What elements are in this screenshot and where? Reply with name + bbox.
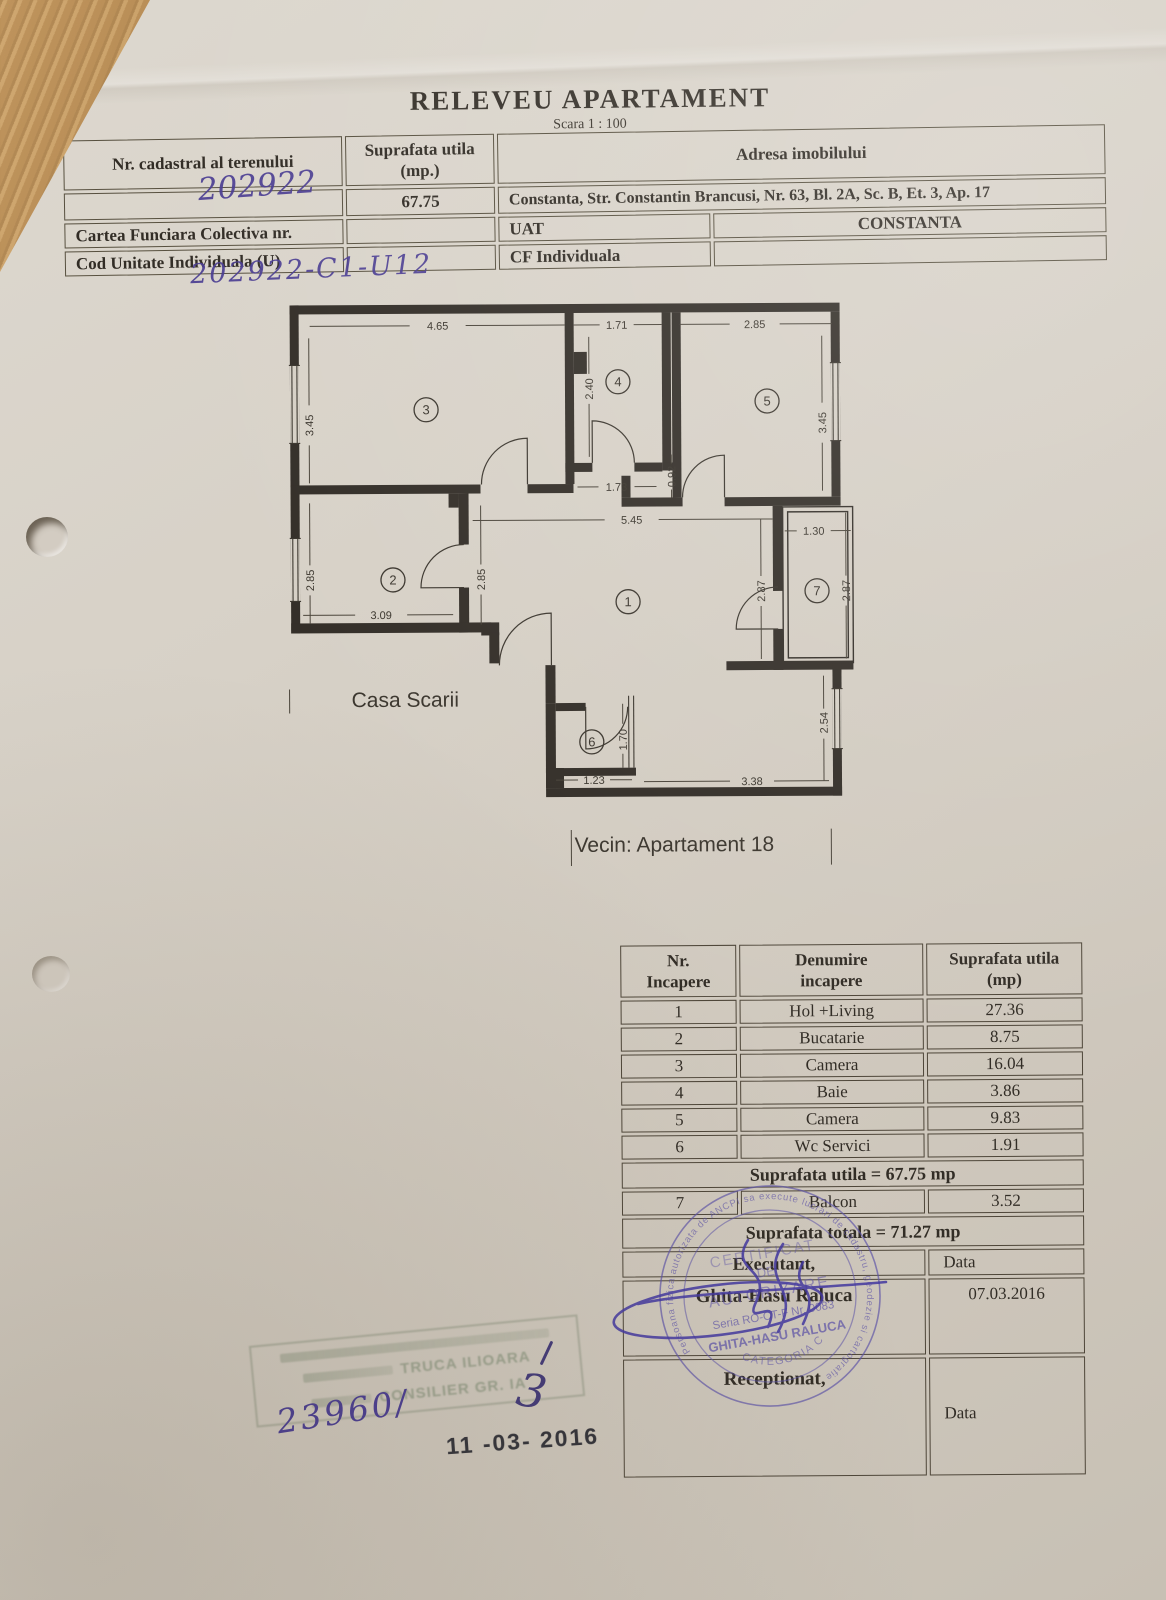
row-area: 3.52 [928, 1188, 1084, 1213]
row-area: 27.36 [927, 997, 1083, 1022]
row-name: Camera [740, 1053, 924, 1078]
header-col3-label: Adresa imobilului [497, 124, 1106, 184]
table-row: 5 Camera 9.83 [621, 1105, 1083, 1132]
punch-hole [26, 517, 68, 557]
dim-side-height: 2.54 [819, 712, 831, 733]
row-name: Wc Servici [740, 1133, 924, 1158]
row-area: 1.91 [927, 1132, 1083, 1157]
dim-room4-width: 1.71 [606, 320, 627, 332]
row-nr: 3 [621, 1054, 737, 1079]
table-row: 6 Wc Servici 1.91 [621, 1132, 1083, 1159]
date-value: 07.03.2016 [928, 1277, 1085, 1354]
col-header-area: Suprafata utila (mp) [926, 942, 1082, 995]
room-7-number: 7 [813, 583, 820, 598]
floor-plan: 4.65 1.71 2.85 3.45 2.40 3.45 1.73 0.92 … [281, 290, 862, 878]
empty-cell [346, 217, 495, 244]
row-area: 9.83 [927, 1105, 1083, 1130]
cf-individuala-label: CF Individuala [499, 241, 711, 269]
date-label-2: Data [929, 1356, 1086, 1475]
row-area: 3.86 [927, 1078, 1083, 1103]
dim-room3-height: 3.45 [304, 415, 316, 436]
col-header-name: Denumire incapere [739, 944, 923, 997]
dim-bottom-width: 3.38 [741, 776, 762, 788]
room-4-number: 4 [614, 374, 621, 389]
dim-room3-width: 4.65 [427, 321, 448, 333]
row-nr: 4 [621, 1081, 737, 1106]
col-header-nr: Nr. Incapere [620, 945, 736, 998]
row-nr: 6 [621, 1135, 737, 1160]
dim-room4-height: 2.40 [584, 378, 596, 399]
date-stamp: 11 -03- 2016 [445, 1423, 600, 1461]
executant-signature [598, 1232, 928, 1372]
table-row: 4 Baie 3.86 [621, 1078, 1083, 1105]
row-nr: 5 [621, 1108, 737, 1133]
document-title: RELEVEU APARTAMENT [290, 81, 890, 118]
row-name: Hol +Living [740, 999, 924, 1024]
dim-wc-height: 1.70 [618, 729, 630, 750]
cartea-funciara-label: Cartea Funciara Colectiva nr. [64, 219, 343, 248]
stairwell-label: Casa Scarii [352, 689, 459, 713]
dim-balcony-height-left: 2.87 [756, 580, 768, 601]
row-nr: 2 [621, 1027, 737, 1052]
row-area: 16.04 [927, 1051, 1083, 1076]
table-row: 1 Hol +Living 27.36 [621, 997, 1083, 1024]
table-row: 3 Camera 16.04 [621, 1051, 1083, 1078]
row-name: Camera [740, 1106, 924, 1131]
room-2-number: 2 [389, 572, 396, 587]
dim-kitchen-door-height: 2.85 [476, 569, 488, 590]
dim-room5-height: 3.45 [817, 412, 829, 433]
dim-passage-width: 1.73 [606, 482, 627, 494]
room-3-number: 3 [422, 402, 429, 417]
row-nr: 1 [621, 1000, 737, 1025]
uat-label: UAT [498, 213, 710, 241]
stamp-officer-name: TRUCA ILIOARA [399, 1348, 531, 1377]
dim-kitchen-width: 3.09 [370, 610, 391, 622]
room-6-number: 6 [588, 734, 595, 749]
scanned-document-paper: RELEVEU APARTAMENT Scara 1 : 100 Nr. cad… [0, 0, 1166, 1600]
dim-balcony-width: 1.30 [803, 526, 824, 538]
dim-room5-width: 2.85 [744, 319, 765, 331]
row-name: Baie [740, 1080, 924, 1105]
walls-layer [290, 303, 855, 799]
illegible-stamp-prefix [302, 1365, 392, 1383]
date-label: Data [928, 1248, 1084, 1275]
uat-value: CONSTANTA [713, 207, 1106, 238]
room-5-number: 5 [763, 393, 770, 408]
dim-balcony-height-right: 2.87 [841, 580, 853, 601]
empty-cell [714, 235, 1107, 266]
doors-layer [420, 420, 779, 750]
punch-hole [32, 956, 70, 992]
dim-wc-width: 1.23 [583, 775, 604, 787]
room-1-number: 1 [624, 594, 631, 609]
table-row: 2 Bucatarie 8.75 [621, 1024, 1083, 1051]
dim-passage-height: 0.92 [666, 466, 678, 487]
neighbor-label: Vecin: Apartament 18 [574, 833, 774, 857]
row-area: 8.75 [927, 1024, 1083, 1049]
dim-kitchen-height: 2.85 [305, 570, 317, 591]
row-name: Bucatarie [740, 1026, 924, 1051]
dim-hall-width: 5.45 [621, 515, 642, 527]
